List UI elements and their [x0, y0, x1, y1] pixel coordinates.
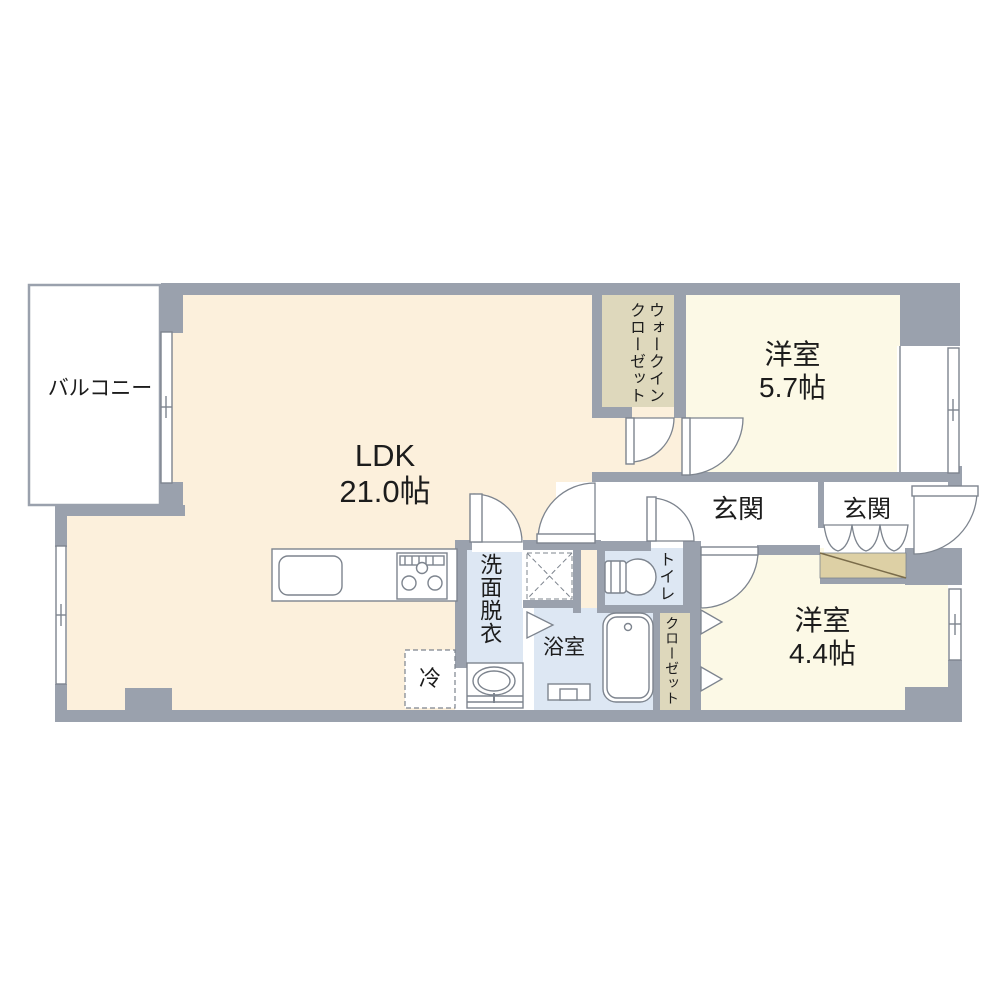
floor-plan: バルコニー LDK 21.0帖 ウォークインクローゼット 洋室 5.7帖 玄関 …: [0, 0, 1000, 1000]
shoe-cabinet: [820, 553, 906, 578]
ldk-size: 21.0帖: [295, 474, 475, 510]
entrance-1-label: 玄関: [688, 495, 788, 525]
western-room-2-size: 4.4帖: [735, 637, 910, 670]
walk-in-closet-label: ウォークインクローゼット: [622, 302, 664, 406]
balcony-window: [161, 332, 172, 483]
bathroom-counter: [548, 684, 590, 700]
kitchen-stove: [397, 553, 447, 599]
wash-basin: [467, 663, 523, 708]
western-room-1-size: 5.7帖: [705, 371, 880, 404]
western-room-1-window: [948, 348, 959, 473]
bathtub: [603, 613, 653, 702]
toilet-label: トイレ: [655, 551, 673, 607]
ldk-label: LDK: [295, 438, 475, 474]
western-room-2-label: 洋室: [735, 604, 910, 637]
refrigerator-label: 冷: [413, 666, 447, 691]
closet-label: クローゼット: [664, 616, 680, 710]
entrance-2-label: 玄関: [828, 496, 906, 524]
balcony-label: バルコニー: [38, 377, 162, 401]
window-bay-recess: [897, 346, 948, 472]
western-room-1-label: 洋室: [705, 338, 880, 371]
kitchen-sink: [279, 556, 342, 595]
western-room-2-window: [949, 589, 961, 660]
front-door: [912, 486, 978, 554]
washroom-label: 洗面脱衣: [477, 553, 502, 659]
kitchen-counter: [272, 549, 457, 601]
entrance-storage-doors: [824, 525, 908, 551]
bathroom-label: 浴室: [543, 636, 585, 660]
ldk-side-window: [56, 546, 66, 684]
toilet-fixture: [605, 559, 656, 595]
